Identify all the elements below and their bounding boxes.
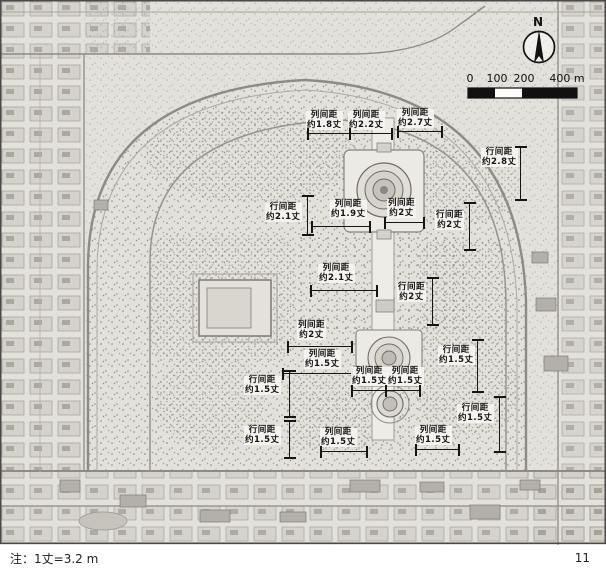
dimension-line [288,346,352,347]
spacing-label: 列间距约2丈 [387,199,416,218]
spacing-label: 行间距约2.1丈 [265,203,302,222]
dimension-line [350,133,392,134]
spacing-label: 列间距约2.2丈 [348,111,385,130]
site-map: N 0 100 200 400 m 列间距约1.8丈列间距约2.2丈列间距约2.… [0,0,606,545]
dimension-line [289,421,290,458]
spacing-label: 列间距约1.5丈 [304,350,341,369]
spacing-label: 列间距约2丈 [297,321,326,340]
dimension-line [432,278,433,325]
dimension-line [385,222,424,223]
annotations-layer: 列间距约1.8丈列间距约2.2丈列间距约2.7丈行间距约2.8丈行间距约2.1丈… [0,0,606,545]
spacing-label: 列间距约2.7丈 [397,109,434,128]
figure-page: N 0 100 200 400 m 列间距约1.8丈列间距约2.2丈列间距约2.… [0,0,606,571]
spacing-label: 列间距约1.9丈 [330,200,367,219]
spacing-label: 行间距约1.5丈 [244,426,281,445]
footer: 注：1丈=3.2 m 11 [0,545,606,571]
spacing-label: 行间距约1.5丈 [457,404,494,423]
spacing-label: 行间距约2.8丈 [481,148,518,167]
dimension-line [307,196,308,235]
scale-note: 注：1丈=3.2 m [10,550,98,567]
dimension-line [283,373,352,374]
dimension-line [469,203,470,250]
dimension-line [352,390,386,391]
dimension-line [289,371,290,417]
dimension-line [499,397,500,452]
spacing-label: 行间距约2丈 [397,283,426,302]
spacing-label: 列间距约1.8丈 [306,111,343,130]
dimension-line [311,290,377,291]
dimension-line [312,226,370,227]
spacing-label: 行间距约2丈 [435,211,464,230]
dimension-line [477,340,478,392]
dimension-line [386,390,420,391]
spacing-label: 行间距约1.5丈 [438,346,475,365]
spacing-label: 列间距约1.5丈 [387,367,424,386]
dimension-line [416,449,459,450]
dimension-line [520,147,521,200]
dimension-line [398,131,442,132]
spacing-label: 行间距约1.5丈 [244,376,281,395]
dimension-line [308,133,350,134]
page-number: 11 [575,551,590,565]
spacing-label: 列间距约1.5丈 [415,426,452,445]
dimension-line [321,451,367,452]
spacing-label: 列间距约2.1丈 [318,264,355,283]
spacing-label: 列间距约1.5丈 [320,428,357,447]
spacing-label: 列间距约1.5丈 [351,367,388,386]
